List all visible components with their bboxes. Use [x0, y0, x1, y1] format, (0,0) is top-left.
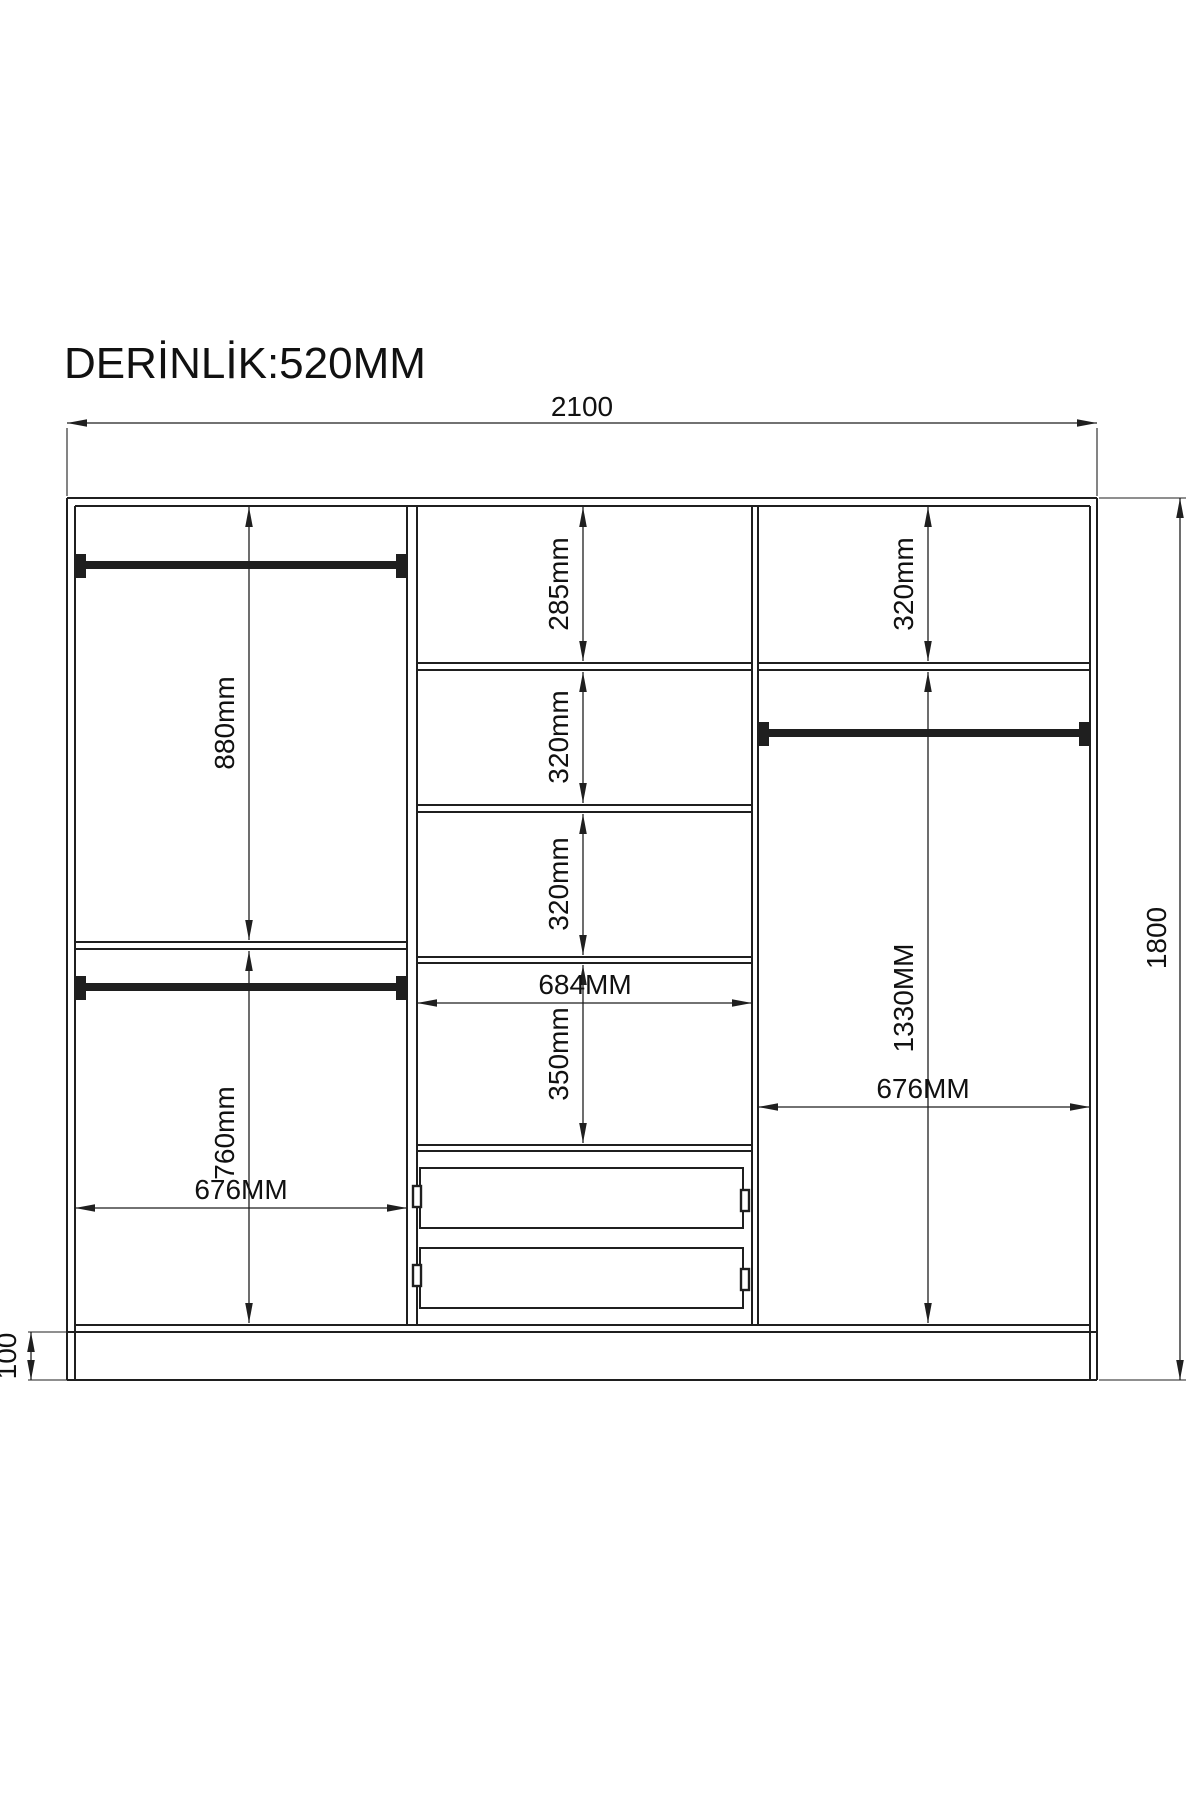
dim-right-width: 676MM — [758, 1073, 1090, 1107]
left-lower-hang-rod — [75, 976, 407, 1000]
drawer2-right-slide-icon — [741, 1269, 749, 1290]
dim-label-right-top-gap: 320mm — [888, 537, 919, 630]
dim-label-overall-width: 2100 — [551, 391, 613, 422]
dim-label-left-lower-height: 760mm — [209, 1086, 240, 1179]
middle-shelf-4 — [417, 1145, 752, 1151]
dim-label-middle-gap3: 320mm — [543, 837, 574, 930]
drawers — [413, 1168, 749, 1308]
drawer1-right-slide-icon — [741, 1190, 749, 1211]
dim-label-plinth-height: 100 — [0, 1333, 22, 1380]
dim-label-middle-gap2: 320mm — [543, 690, 574, 783]
dim-label-middle-width: 684MM — [538, 969, 631, 1000]
dim-label-right-hang-height: 1330MM — [888, 944, 919, 1053]
wardrobe-technical-drawing: DERİNLİK:520MM — [0, 0, 1200, 1800]
dim-overall-height: 1800 — [1099, 498, 1186, 1380]
middle-shelf-1 — [417, 663, 752, 670]
dim-label-middle-gap1: 285mm — [543, 537, 574, 630]
dim-plinth-height: 100 — [0, 1332, 67, 1380]
wardrobe-technical-drawing-page: DERİNLİK:520MM — [0, 0, 1200, 1800]
dim-middle-gap2: 320mm — [543, 672, 583, 803]
middle-shelf-3 — [417, 957, 752, 963]
drawing-title: DERİNLİK:520MM — [64, 339, 426, 388]
dim-label-left-upper-height: 880mm — [209, 676, 240, 769]
middle-shelf-2 — [417, 805, 752, 812]
dim-right-top-gap: 320mm — [888, 507, 928, 661]
left-upper-hang-rod — [75, 554, 407, 578]
dim-middle-gap1: 285mm — [543, 507, 583, 661]
right-hang-rod — [758, 722, 1090, 746]
drawer2-left-slide-icon — [413, 1265, 421, 1286]
dim-left-width: 676MM — [75, 1174, 407, 1208]
dim-right-hang-height: 1330MM — [888, 672, 928, 1323]
drawer1-left-slide-icon — [413, 1186, 421, 1207]
dim-middle-gap3: 320mm — [543, 814, 583, 955]
dim-overall-width: 2100 — [67, 391, 1097, 496]
dim-label-middle-gap4: 350mm — [543, 1007, 574, 1100]
dim-middle-width: 684MM — [417, 969, 752, 1003]
dim-label-right-width: 676MM — [876, 1073, 969, 1104]
dim-label-overall-height: 1800 — [1141, 907, 1172, 969]
dim-left-upper-height: 880mm — [209, 507, 249, 940]
drawer-front-1 — [420, 1168, 743, 1228]
dim-left-lower-height: 760mm — [209, 951, 249, 1323]
dim-label-left-width: 676MM — [194, 1174, 287, 1205]
left-shelf — [75, 942, 407, 949]
drawer-front-2 — [420, 1248, 743, 1308]
right-shelf — [758, 663, 1090, 670]
